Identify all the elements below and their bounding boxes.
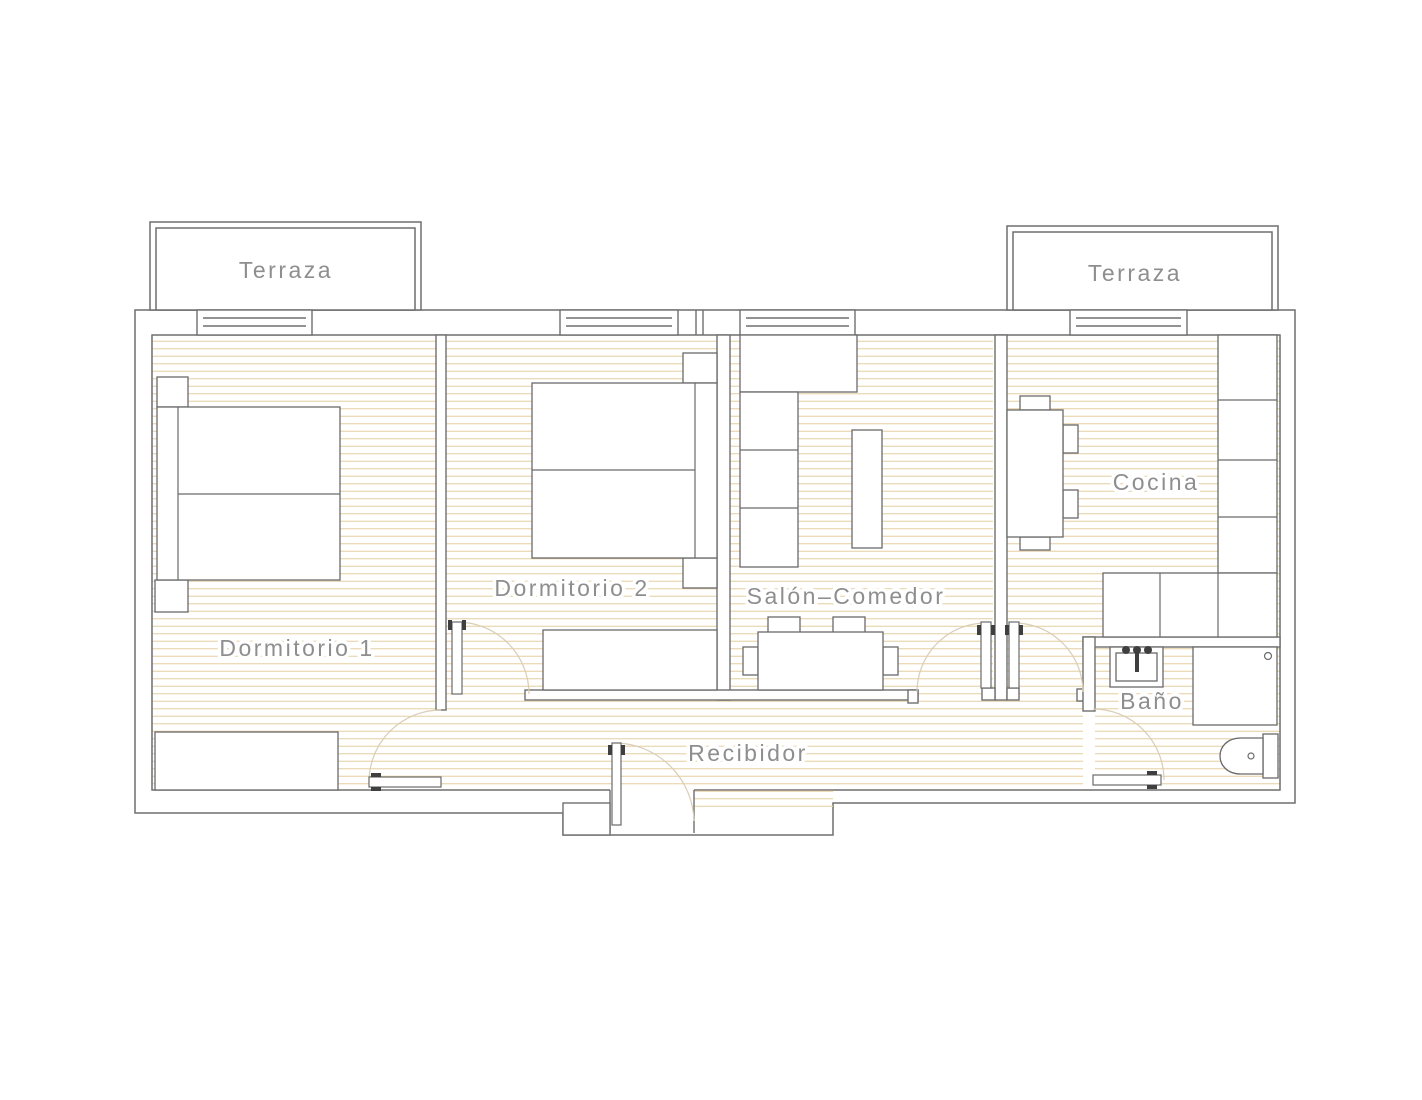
window-dormitorio-1	[197, 310, 312, 335]
door-latch-mark	[1005, 625, 1009, 635]
dining-chair	[768, 617, 800, 633]
door-latch-mark	[1147, 771, 1157, 775]
entrance-pier	[563, 803, 610, 835]
window-dormitorio-2	[560, 310, 678, 335]
sofa	[740, 392, 798, 567]
nightstand	[683, 558, 717, 588]
label-cocina: Cocina	[1113, 469, 1200, 495]
faucet-knob-icon	[1144, 646, 1152, 654]
toilet-cistern	[1263, 734, 1278, 778]
kitchen-counter-south	[1103, 573, 1277, 637]
sideboard	[740, 335, 857, 392]
wall-dormitorio1-dormitorio2	[436, 335, 446, 710]
label-bano: Baño	[1120, 688, 1184, 714]
label-dormitorio-2: Dormitorio 2	[494, 575, 649, 601]
window-cocina	[1070, 310, 1187, 335]
label-recibidor: Recibidor	[688, 740, 808, 766]
door-leaf	[369, 777, 441, 787]
dining-chair	[743, 647, 758, 675]
door-latch-mark	[991, 625, 995, 635]
wall-bano-west	[1083, 637, 1095, 711]
wall-bano-north	[1083, 637, 1280, 647]
label-dormitorio-1: Dormitorio 1	[219, 635, 374, 661]
door-leaf	[981, 622, 991, 688]
label-terraza-right: Terraza	[1088, 260, 1182, 286]
kitchen-counter-east	[1218, 335, 1277, 573]
floor-plan-canvas: Terraza Terraza Dormitorio 1 Dormitorio …	[0, 0, 1422, 1100]
window-salon	[740, 310, 855, 335]
label-terraza-left: Terraza	[239, 257, 333, 283]
door-latch-mark	[462, 620, 466, 630]
dining-table	[758, 632, 883, 690]
faucet-stem-icon	[1135, 650, 1139, 672]
wall-salon-cocina	[995, 335, 1007, 700]
entrance-opening	[610, 787, 694, 833]
door-leaf	[1093, 775, 1161, 785]
kitchen-chair	[1020, 396, 1050, 410]
door-plate-cocina	[1007, 688, 1019, 700]
door-latch-mark	[977, 625, 981, 635]
door-latch-mark	[621, 745, 625, 755]
floor-plan-drawing: Terraza Terraza Dormitorio 1 Dormitorio …	[0, 0, 1422, 1100]
kitchen-table	[1007, 410, 1063, 537]
door-leaf	[612, 743, 621, 825]
door-latch-mark	[1019, 625, 1023, 635]
furniture-dormitorio-2	[532, 353, 717, 690]
nightstand	[155, 580, 188, 612]
coffee-table	[852, 430, 882, 548]
kitchen-chair	[1020, 537, 1050, 550]
wardrobe	[155, 732, 338, 790]
door-plate-salon	[982, 688, 995, 700]
door-latch-mark	[608, 745, 612, 755]
closet	[543, 630, 717, 690]
kitchen-chair	[1063, 425, 1078, 453]
dining-chair	[833, 617, 865, 633]
shower-tray	[1193, 647, 1277, 725]
door-latch-mark	[371, 773, 381, 777]
nightstand	[157, 377, 188, 407]
door-latch-mark	[371, 787, 381, 791]
wall-dormitorio2-salon	[717, 335, 730, 700]
dining-chair	[883, 647, 898, 675]
door-latch-mark	[448, 620, 452, 630]
nightstand	[683, 353, 717, 383]
wall-hall-south-of-d2-salon	[525, 690, 918, 700]
room-floor-entrance-bay	[694, 790, 833, 812]
faucet-knob-icon	[1122, 646, 1130, 654]
door-leaf	[1009, 622, 1019, 688]
door-latch-mark	[1147, 785, 1157, 789]
kitchen-chair	[1063, 490, 1078, 518]
door-leaf	[452, 622, 462, 694]
label-salon-comedor: Salón–Comedor	[747, 583, 946, 609]
toilet-bowl	[1220, 738, 1263, 774]
